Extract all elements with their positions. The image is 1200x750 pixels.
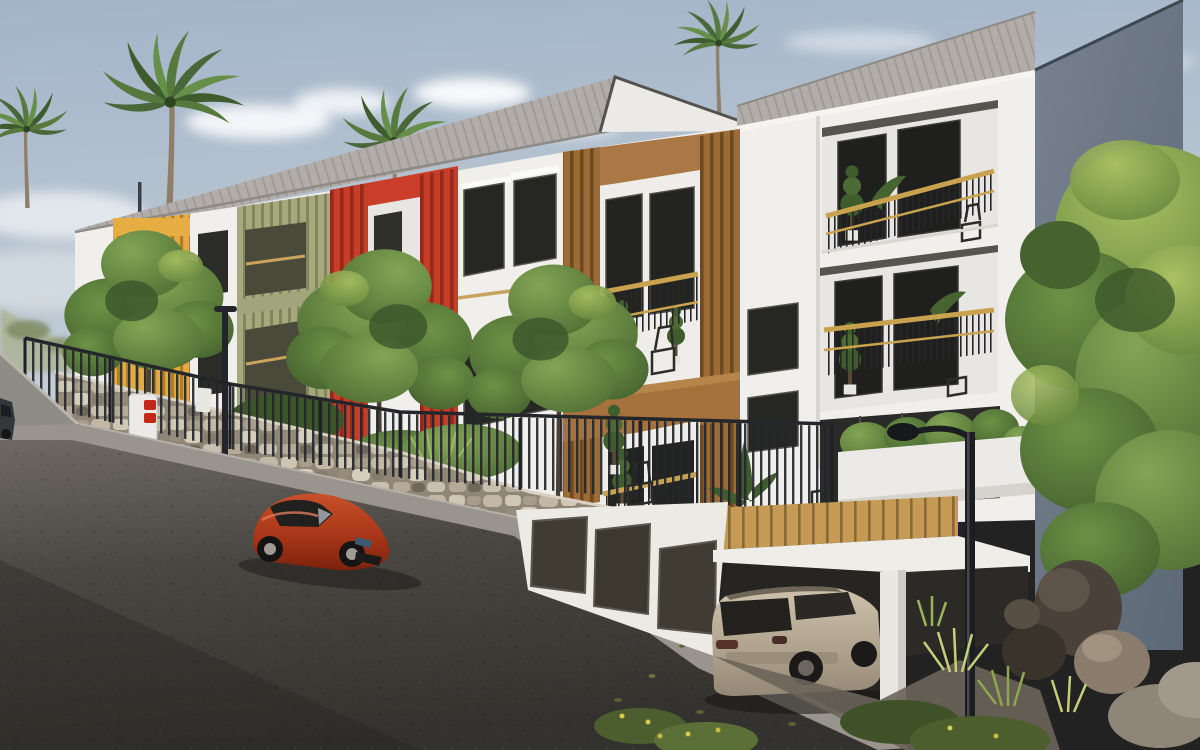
fence-sign [195,388,212,413]
no-entry-sign-icon [144,400,156,410]
suv-taillight [716,640,738,649]
lamp-pole [965,432,975,750]
garage-door [531,517,587,593]
architectural-rendering [0,0,1200,750]
lamp-head [887,423,919,441]
no-entry-sign-icon [144,413,156,423]
gable-balcony-floor2 [820,245,998,412]
suv-wheel [851,641,877,667]
garage-door [658,541,716,634]
rendering-canvas [0,0,1200,750]
garage-door [594,524,650,614]
suv-taillight [772,636,787,644]
